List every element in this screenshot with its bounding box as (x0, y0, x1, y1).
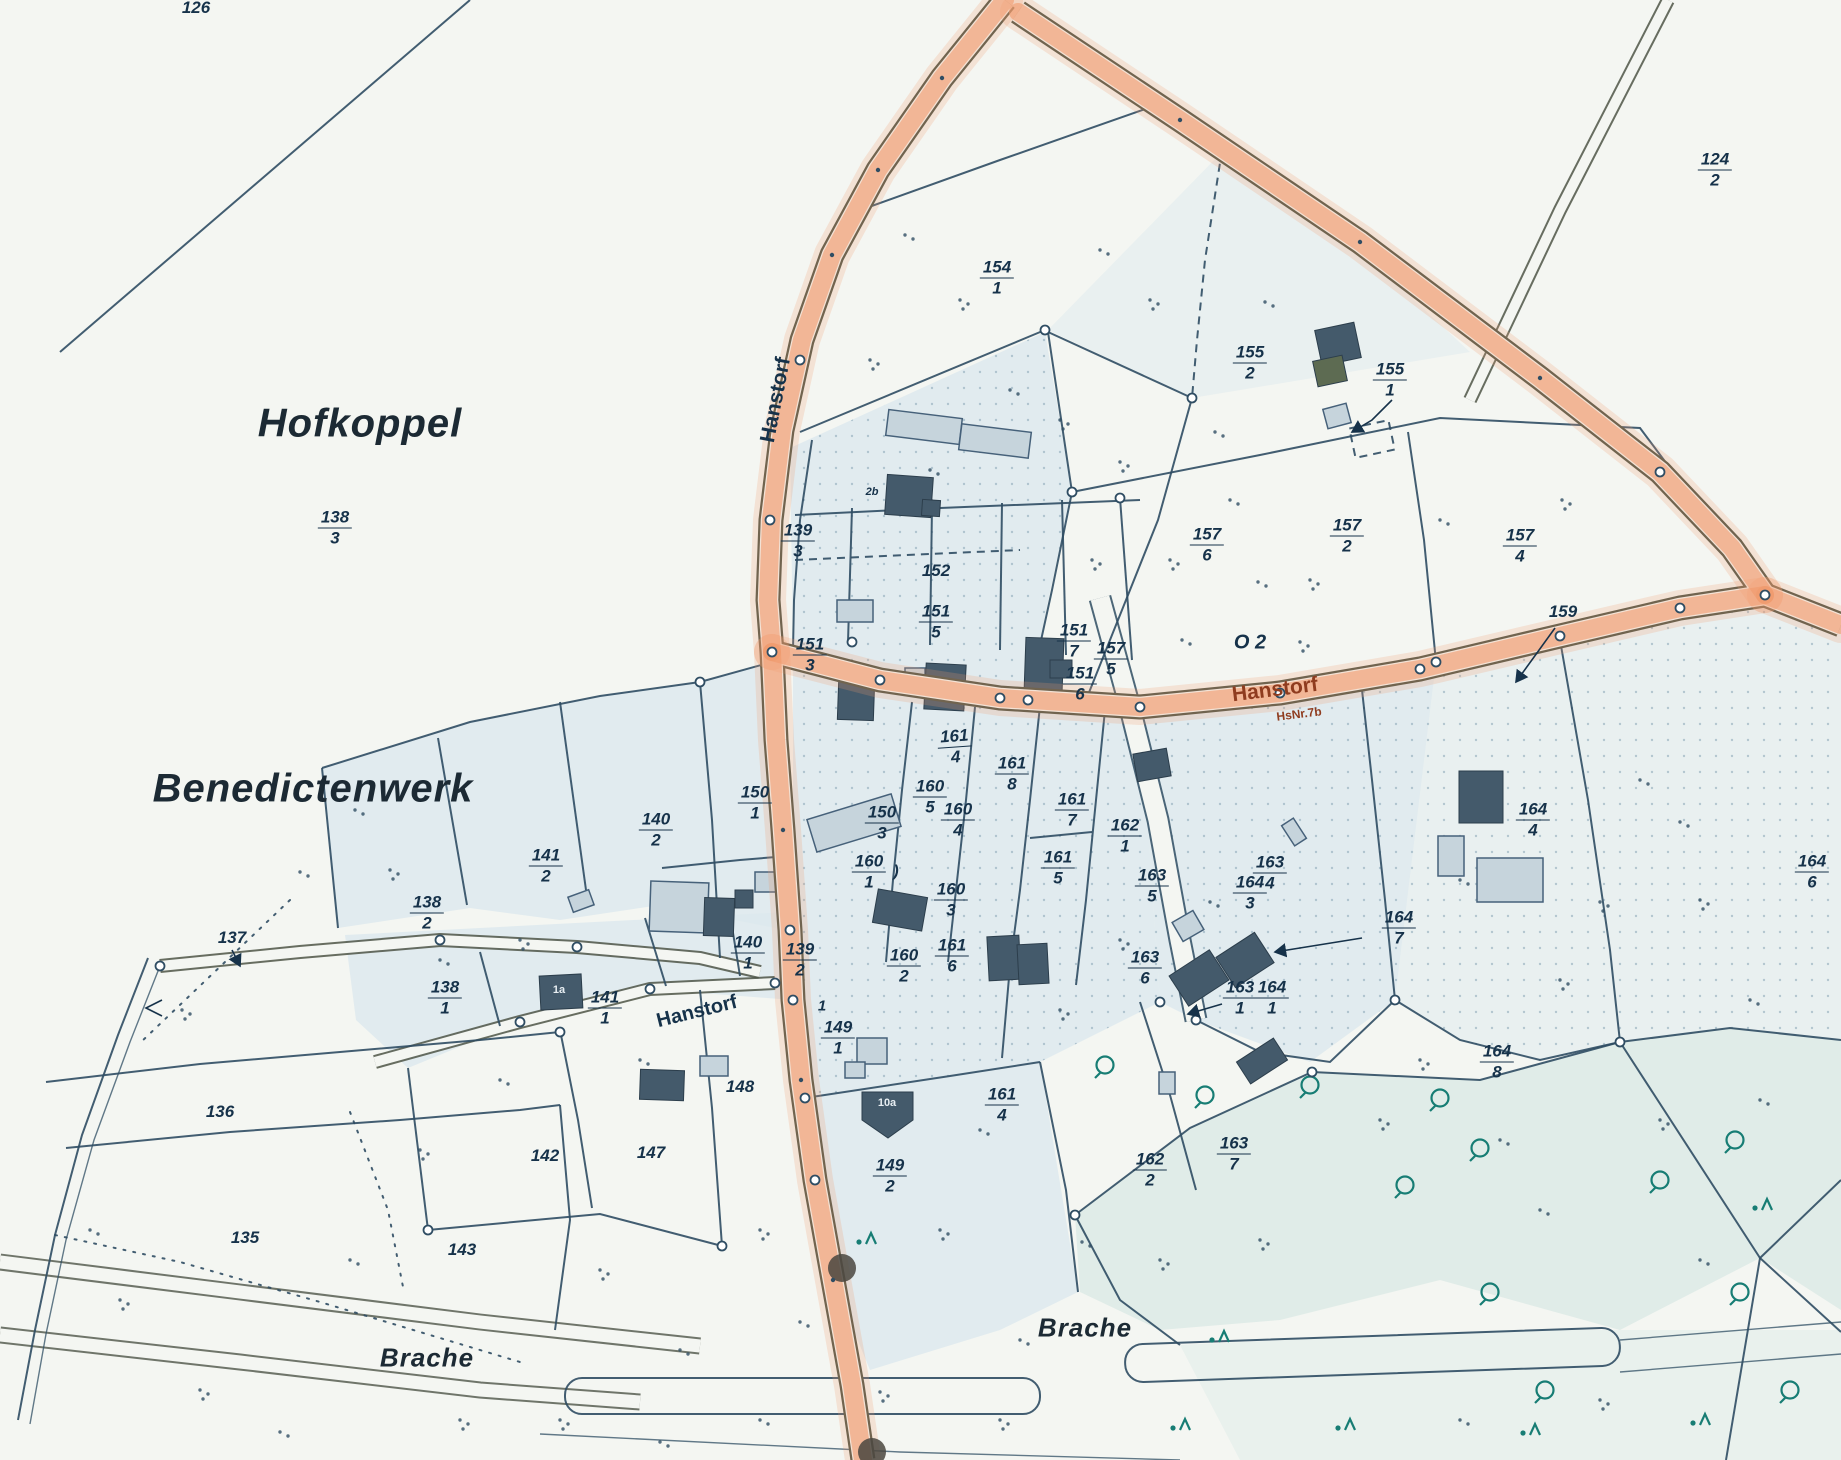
parcel-label-126: 126 (179, 0, 213, 18)
parcel-label-161-5: 1615 (1041, 848, 1075, 889)
parcel-label-163-6: 1636 (1128, 948, 1162, 989)
parcel-label-149-1: 1491 (821, 1018, 855, 1059)
annotation-10a: 10a (878, 1097, 896, 1109)
parcel-label-161-4: 1614 (985, 1085, 1019, 1126)
parcel-label-164-6: 1646 (1795, 852, 1829, 893)
parcel-label-138-3: 1383 (318, 508, 352, 549)
parcel-label-150-3: 1503 (865, 803, 899, 844)
annotation-1a: 1a (553, 984, 565, 996)
parcel-label-141-2: 1412 (529, 846, 563, 887)
parcel-label-161-4: 1614 (936, 725, 973, 768)
parcel-label-155-1: 1551 (1373, 360, 1407, 401)
parcel-label-149-2: 1492 (873, 1156, 907, 1197)
region-name-benedictenwerk: Benedictenwerk (153, 767, 474, 812)
parcel-label-161-6: 1616 (935, 936, 969, 977)
region-name-brache: Brache (1038, 1313, 1132, 1344)
annotation-o2: O 2 (1234, 632, 1266, 655)
cadastral-map: 1261383124215411552155115761572157415915… (0, 0, 1841, 1460)
parcel-label-163-5: 1635 (1135, 866, 1169, 907)
parcel-label-162-2: 1622 (1133, 1150, 1167, 1191)
parcel-label-161-8: 1618 (995, 754, 1029, 795)
parcel-label-142: 142 (528, 1146, 562, 1166)
parcel-label-163-7: 1637 (1217, 1134, 1251, 1175)
parcel-label-164-8: 1648 (1480, 1042, 1514, 1083)
parcel-label-139-2: 1392 (783, 940, 817, 981)
parcel-label-140-2: 1402 (639, 810, 673, 851)
parcel-label-161-7: 1617 (1055, 790, 1089, 831)
parcel-label-147: 147 (634, 1143, 668, 1163)
parcel-label-138-2: 1382 (410, 893, 444, 934)
annotation-2b: 2b (866, 486, 879, 498)
parcel-label-155-2: 1552 (1233, 343, 1267, 384)
parcel-label-151-7: 1517 (1057, 621, 1091, 662)
parcel-label-164-4: 1644 (1516, 800, 1550, 841)
parcel-label-164-7: 1647 (1382, 908, 1416, 949)
parcel-label-164-1: 1641 (1255, 978, 1289, 1019)
parcel-label-138-1: 1381 (428, 978, 462, 1019)
parcel-label-157-5: 1575 (1094, 639, 1128, 680)
parcel-label-151-5: 1515 (919, 602, 953, 643)
parcel-label-151-3: 1513 (793, 635, 827, 676)
region-name-hofkoppel: Hofkoppel (258, 402, 463, 447)
parcel-label-157-6: 1576 (1190, 525, 1224, 566)
parcel-label-136: 136 (203, 1102, 237, 1122)
parcel-label-148: 148 (723, 1077, 757, 1097)
parcel-label-124-2: 1242 (1698, 150, 1732, 191)
parcel-label-160-2: 1602 (887, 946, 921, 987)
parcel-label-151-6: 1516 (1063, 664, 1097, 705)
annotation-1: 1 (818, 998, 826, 1015)
parcel-label-160-1: 1601 (852, 852, 886, 893)
parcel-label-163-1: 1631 (1223, 978, 1257, 1019)
parcel-label-152: 152 (919, 561, 953, 581)
parcel-label-135: 135 (228, 1228, 262, 1248)
parcel-label-162-1: 1621 (1108, 816, 1142, 857)
parcel-label-141-1: 1411 (588, 988, 622, 1029)
parcel-label-154-1: 1541 (980, 258, 1014, 299)
region-name-brache: Brache (380, 1343, 474, 1374)
annotation-): ) (893, 863, 898, 881)
parcel-label-157-4: 1574 (1503, 526, 1537, 567)
parcel-label-157-2: 1572 (1330, 516, 1364, 557)
parcel-label-164-3: 1643 (1233, 873, 1267, 914)
map-linework (0, 0, 1841, 1460)
parcel-label-140-1: 1401 (731, 933, 765, 974)
parcel-label-150-1: 1501 (738, 783, 772, 824)
parcel-label-137: 137 (215, 928, 249, 948)
parcel-label-160-3: 1603 (934, 880, 968, 921)
parcel-label-160-4: 1604 (941, 800, 975, 841)
parcel-label-139-3: 1393 (781, 521, 815, 562)
parcel-label-143: 143 (445, 1240, 479, 1260)
parcel-label-159: 159 (1546, 602, 1580, 622)
